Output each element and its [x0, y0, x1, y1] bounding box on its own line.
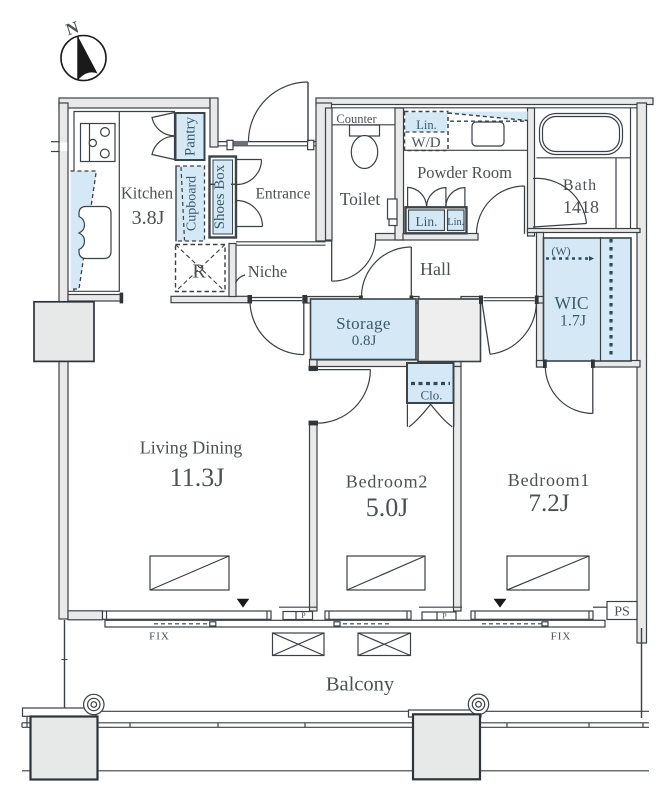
svg-text:Bedroom2: Bedroom2 [346, 472, 428, 492]
svg-text:0.8J: 0.8J [352, 333, 377, 349]
svg-text:Hall: Hall [420, 259, 451, 279]
svg-text:FIX: FIX [551, 631, 572, 643]
svg-text:Storage: Storage [336, 314, 391, 333]
svg-text:11.3J: 11.3J [170, 463, 225, 492]
svg-text:P: P [442, 612, 447, 621]
svg-text:Bedroom1: Bedroom1 [508, 470, 590, 490]
svg-text:WIC: WIC [554, 293, 588, 313]
svg-text:Lin.: Lin. [447, 217, 464, 228]
svg-text:Powder Room: Powder Room [417, 163, 512, 182]
svg-text:1.7J: 1.7J [560, 313, 586, 330]
svg-text:Clo.: Clo. [420, 388, 442, 403]
svg-text:Lin.: Lin. [416, 118, 436, 132]
svg-text:Lin.: Lin. [415, 214, 437, 229]
svg-text:Pantry: Pantry [183, 116, 199, 156]
svg-text:Living Dining: Living Dining [140, 438, 243, 458]
svg-text:W/D: W/D [411, 135, 440, 151]
svg-text:Shoes Box: Shoes Box [212, 164, 228, 229]
svg-text:Bath: Bath [563, 177, 597, 194]
svg-text:3.8J: 3.8J [132, 207, 165, 229]
svg-text:Kitchen: Kitchen [121, 184, 173, 203]
svg-text:Toilet: Toilet [340, 189, 381, 209]
svg-text:PS: PS [614, 605, 630, 620]
svg-text:P: P [301, 611, 306, 620]
svg-text:5.0J: 5.0J [366, 493, 409, 522]
svg-text:Counter: Counter [336, 112, 377, 126]
svg-text:FIX: FIX [149, 631, 170, 643]
svg-text:Balcony: Balcony [326, 674, 395, 696]
svg-text:R: R [192, 261, 206, 283]
svg-text:7.2J: 7.2J [529, 490, 570, 517]
svg-text:Cupboard: Cupboard [185, 176, 200, 231]
svg-text:(W): (W) [551, 244, 570, 258]
svg-text:Niche: Niche [248, 262, 287, 281]
svg-text:Entrance: Entrance [255, 186, 310, 203]
svg-text:1418: 1418 [563, 197, 599, 217]
